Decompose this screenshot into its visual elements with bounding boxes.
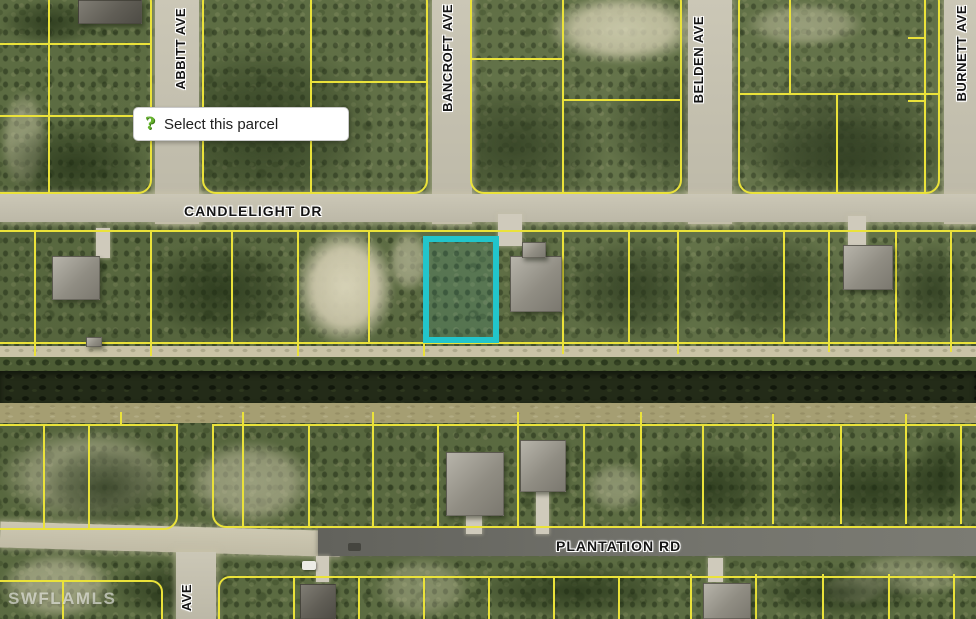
parcel-line (789, 0, 791, 93)
parcel-line (242, 412, 244, 426)
parcel-line (828, 232, 830, 342)
parcel-line (960, 424, 962, 524)
parcel-line (308, 424, 310, 526)
parcel-line (62, 580, 64, 619)
parcel-line (950, 232, 952, 342)
parcel-line (888, 574, 890, 619)
vehicle (348, 543, 361, 551)
parcel-line (120, 412, 122, 426)
road-segment (944, 0, 976, 224)
tree-area (740, 120, 960, 200)
parcel-line (423, 576, 425, 619)
parcel-line (908, 37, 924, 39)
parcel-line (150, 344, 152, 356)
parcel-line (517, 424, 519, 526)
parcel-line (677, 232, 679, 344)
parcel-line (950, 340, 952, 352)
road-segment (0, 194, 976, 222)
parcel-line (150, 230, 152, 344)
parcel-line (310, 81, 428, 83)
parcel-line (690, 574, 692, 619)
driveway (316, 556, 329, 582)
tree-area (110, 560, 240, 619)
selected-parcel-highlight[interactable] (423, 236, 499, 343)
parcel-line (562, 232, 564, 344)
parcel-line (470, 58, 564, 60)
tree-area (690, 232, 850, 340)
parcel-line (755, 574, 757, 619)
driveway (536, 490, 549, 534)
parcel-line (372, 424, 374, 526)
vehicle (302, 561, 316, 570)
canal-service-track (0, 403, 976, 423)
parcel-line (0, 115, 150, 117)
parcel-line (738, 93, 938, 95)
aerial-map[interactable]: ABBITT AVE BANCROFT AVE BELDEN AVE BURNE… (0, 0, 976, 619)
parcel-line (953, 574, 955, 619)
parcel-line (640, 424, 642, 526)
parcel-line (908, 100, 924, 102)
select-parcel-tooltip: ? Select this parcel (133, 107, 349, 141)
parcel-line (828, 340, 830, 352)
parcel-line (368, 230, 370, 344)
road-segment (176, 552, 216, 619)
parcel-line (905, 424, 907, 524)
parcel-line (437, 424, 439, 526)
house (843, 245, 893, 290)
parcel-line (562, 0, 564, 192)
parcel-line (562, 342, 564, 354)
sand-area (745, 2, 865, 47)
tooltip-text: Select this parcel (164, 116, 278, 133)
driveway (498, 214, 522, 246)
parcel-line (583, 424, 585, 526)
sand-area (295, 228, 395, 346)
canal-water (0, 371, 976, 403)
parcel-line (488, 576, 490, 619)
house (300, 584, 336, 619)
parcel-line (297, 230, 299, 344)
parcel-line (242, 424, 244, 526)
parcel-line (372, 412, 374, 426)
help-question-icon: ? (145, 116, 155, 133)
parcel-line (822, 574, 824, 619)
parcel-line (783, 232, 785, 342)
tree-area (910, 430, 976, 520)
house (86, 337, 102, 347)
parcel-line (293, 576, 295, 619)
parcel-line (43, 424, 45, 528)
parcel-line (772, 424, 774, 524)
tree-area (560, 235, 710, 340)
driveway (466, 514, 482, 534)
parcel-line (677, 342, 679, 354)
map-viewport: ABBITT AVE BANCROFT AVE BELDEN AVE BURNE… (0, 0, 976, 619)
road-segment (432, 0, 472, 224)
sand-area (0, 552, 115, 619)
road-segment (318, 528, 976, 556)
parcel-line (702, 424, 704, 524)
parcel-line (553, 576, 555, 619)
parcel-line (562, 99, 682, 101)
tree-area (470, 562, 680, 619)
sand-area (185, 440, 315, 525)
parcel-line (840, 424, 842, 524)
tree-area (640, 445, 780, 530)
house (520, 440, 566, 492)
parcel-line (772, 414, 774, 426)
house (703, 583, 751, 619)
parcel-line (34, 344, 36, 356)
tree-area (40, 445, 170, 530)
house (78, 0, 142, 24)
house (446, 452, 504, 516)
parcel-line (618, 576, 620, 619)
parcel-line (924, 0, 926, 192)
parcel-line (628, 232, 630, 344)
tree-area (890, 240, 976, 340)
parcel-line (640, 412, 642, 426)
driveway (96, 228, 110, 258)
driveway (708, 558, 723, 582)
road-segment (688, 0, 732, 224)
parcel-line (905, 414, 907, 426)
parcel-line (297, 344, 299, 356)
tree-area (140, 240, 300, 340)
parcel-line (231, 230, 233, 344)
parcel-line (517, 412, 519, 426)
parcel-line (836, 95, 838, 192)
tree-area (755, 565, 925, 619)
parcel-line (310, 0, 312, 192)
parcel-line (88, 424, 90, 528)
house (510, 256, 562, 312)
house (522, 242, 546, 258)
house (52, 256, 100, 300)
parcel-line (34, 230, 36, 344)
parcel-line (358, 576, 360, 619)
parcel-line (423, 344, 425, 356)
parcel-line (48, 0, 50, 192)
parcel-line (895, 232, 897, 342)
driveway (848, 216, 866, 247)
parcel-line (0, 43, 150, 45)
